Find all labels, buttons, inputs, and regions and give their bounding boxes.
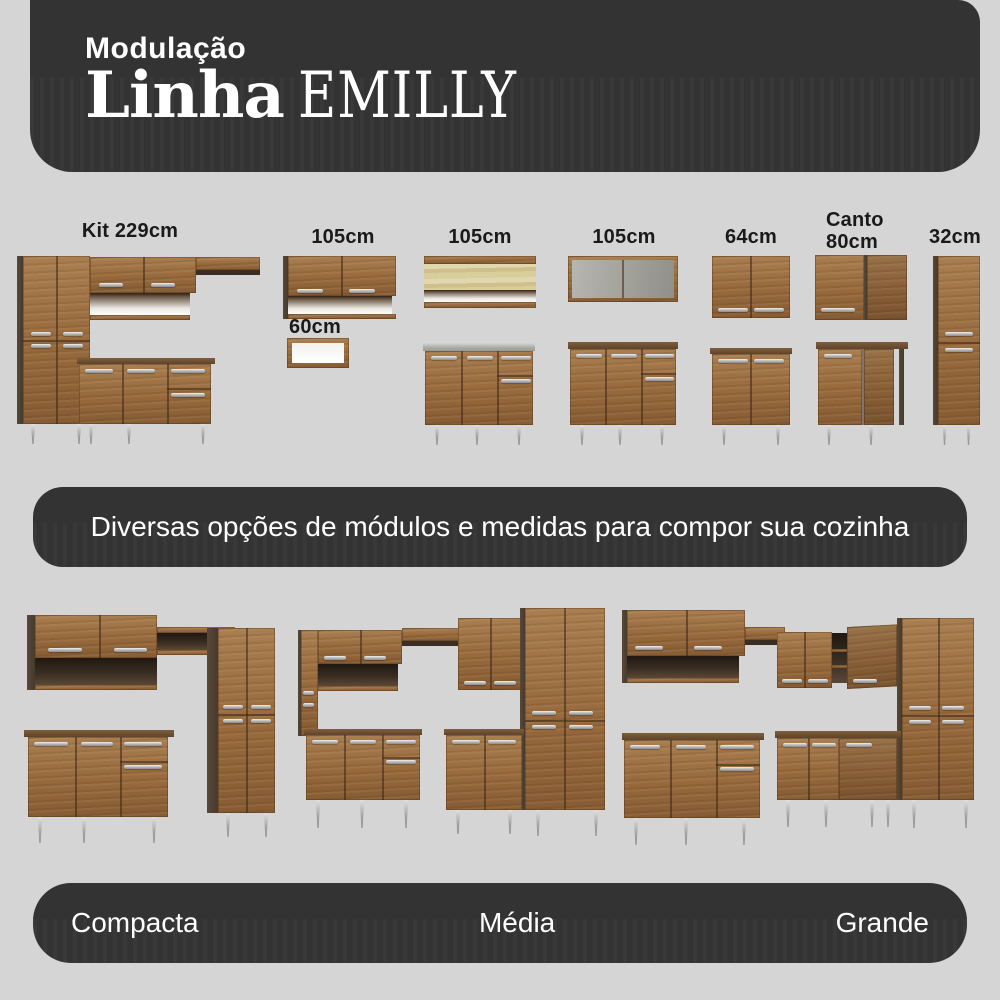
cabinet-leg bbox=[720, 425, 728, 445]
door-seam bbox=[341, 256, 343, 296]
door-seam bbox=[902, 715, 974, 717]
corner-cubbies bbox=[832, 633, 847, 683]
side-panel bbox=[27, 615, 35, 690]
base-cabinet bbox=[570, 349, 676, 425]
cabinet-handle bbox=[114, 648, 147, 652]
page-title: LinhaEMILLY bbox=[85, 58, 565, 133]
cabinet-handle bbox=[576, 354, 602, 358]
drawer-seam bbox=[497, 375, 533, 377]
cabinet-handle bbox=[63, 332, 83, 336]
module-label-105-b: 105cm bbox=[423, 226, 537, 248]
pine-sliding-doors bbox=[424, 264, 536, 290]
cabinet-handle bbox=[494, 681, 516, 685]
shelf-board bbox=[424, 302, 536, 308]
cabinet-handle bbox=[630, 745, 660, 749]
cabinet-handle bbox=[821, 308, 855, 312]
kitchen-grande-graphic bbox=[622, 603, 995, 855]
door-seam bbox=[716, 740, 718, 818]
cabinet-leg bbox=[658, 425, 666, 445]
open-shelf bbox=[288, 296, 392, 314]
countertop bbox=[24, 730, 174, 737]
kitchen-media-graphic bbox=[298, 603, 620, 853]
sink-top bbox=[423, 343, 535, 351]
shelf-board bbox=[35, 685, 157, 690]
module-label-32: 32cm bbox=[910, 226, 1000, 248]
door-seam bbox=[218, 714, 275, 716]
cabinet-leg bbox=[941, 425, 948, 445]
cabinet-handle bbox=[223, 705, 243, 709]
module-105-glass-graphic bbox=[568, 252, 680, 446]
cabinet-leg bbox=[592, 810, 600, 836]
cabinet-leg bbox=[75, 424, 83, 444]
cabinet-handle bbox=[676, 745, 706, 749]
module-label-105-a: 105cm bbox=[287, 226, 399, 248]
door-seam bbox=[143, 257, 145, 293]
cabinet-frame bbox=[424, 256, 536, 264]
open-shelf bbox=[318, 664, 398, 686]
drawer-seam bbox=[382, 757, 420, 759]
cabinet-handle bbox=[808, 679, 828, 683]
shelf-underside bbox=[402, 641, 460, 646]
kitchen-compacta-graphic bbox=[20, 608, 288, 850]
kitchens-section bbox=[0, 595, 1000, 883]
cabinet-handle bbox=[251, 719, 271, 723]
cabinet-handle bbox=[251, 705, 271, 709]
subtitle-text: Diversas opções de módulos e medidas par… bbox=[91, 511, 910, 543]
shelf-board bbox=[318, 686, 398, 691]
cabinet-handle bbox=[124, 742, 162, 746]
cabinet-leg bbox=[962, 800, 970, 828]
cabinet-leg bbox=[884, 800, 892, 827]
cabinet-handle bbox=[853, 679, 877, 683]
open-shelf bbox=[627, 656, 739, 678]
cabinet-handle bbox=[824, 354, 852, 358]
module-label-canto-line2: 80cm bbox=[826, 231, 884, 253]
cabinet-handle bbox=[31, 344, 51, 348]
shelf-box-interior bbox=[292, 343, 344, 363]
cabinet-handle bbox=[386, 760, 416, 764]
cabinet-handle bbox=[171, 393, 205, 397]
base-cabinet bbox=[28, 737, 168, 817]
header-banner: Modulação LinhaEMILLY bbox=[30, 0, 980, 172]
cabinet-handle bbox=[452, 740, 480, 744]
cabinet-handle bbox=[569, 711, 593, 715]
door-seam bbox=[120, 737, 122, 817]
door-seam bbox=[808, 738, 810, 800]
cabinet-leg bbox=[682, 818, 690, 845]
cabinet-leg bbox=[402, 800, 410, 828]
cabinet-handle bbox=[720, 767, 754, 771]
shelf-board bbox=[627, 678, 739, 683]
cabinet-leg bbox=[534, 810, 542, 836]
module-label-canto-line1: Canto bbox=[826, 209, 884, 231]
cabinet-handle bbox=[223, 719, 243, 723]
door-seam bbox=[75, 737, 77, 817]
cabinet-handle bbox=[645, 354, 674, 358]
cabinet-handle bbox=[635, 646, 663, 650]
cabinet-handle bbox=[303, 691, 314, 695]
cabinet-handle bbox=[532, 725, 556, 729]
support-panel bbox=[899, 349, 904, 425]
kitchen-size-label-grande: Grande bbox=[836, 907, 929, 939]
door-seam bbox=[938, 618, 940, 800]
module-label-64: 64cm bbox=[710, 226, 792, 248]
cabinet-handle bbox=[81, 742, 113, 746]
door-seam bbox=[167, 364, 169, 424]
cabinet-handle bbox=[31, 332, 51, 336]
open-shelf bbox=[424, 290, 536, 302]
cabinet-handle bbox=[569, 725, 593, 729]
cabinet-handle bbox=[386, 740, 416, 744]
open-shelf bbox=[90, 293, 190, 315]
door-seam bbox=[670, 740, 672, 818]
side-panel bbox=[207, 628, 218, 813]
cabinet-handle bbox=[324, 656, 346, 660]
cabinet-handle bbox=[488, 740, 516, 744]
door-seam bbox=[360, 630, 362, 664]
cabinet-handle bbox=[909, 706, 931, 710]
cabinet-handle bbox=[909, 720, 931, 724]
cabinet-leg bbox=[784, 800, 792, 827]
cabinet-handle bbox=[303, 703, 314, 707]
cabinet-handle bbox=[48, 648, 82, 652]
cabinet-handle bbox=[501, 356, 531, 360]
cabinet-leg bbox=[473, 425, 481, 445]
corner-base-door bbox=[818, 349, 862, 425]
narrow-column bbox=[301, 630, 318, 736]
cabinet-leg bbox=[740, 818, 748, 845]
corner-countertop bbox=[816, 342, 908, 349]
door-seam bbox=[23, 340, 90, 342]
corner-base-panel bbox=[839, 738, 897, 800]
door-seam bbox=[605, 349, 607, 425]
cabinet-handle bbox=[945, 348, 973, 352]
cabinet-handle bbox=[532, 711, 556, 715]
drawer-seam bbox=[167, 388, 211, 390]
module-32-graphic bbox=[933, 252, 980, 448]
cabinet-leg bbox=[822, 800, 830, 827]
door-seam bbox=[497, 351, 499, 425]
module-canto-80-graphic bbox=[813, 252, 910, 448]
cabinet-handle bbox=[431, 356, 457, 360]
cabinet-handle bbox=[297, 289, 323, 293]
cabinet-handle bbox=[85, 369, 113, 373]
corner-countertop bbox=[775, 731, 901, 738]
cubby-shelf bbox=[832, 649, 847, 652]
cabinet-handle bbox=[349, 289, 375, 293]
title-line-accent: EMILLY bbox=[298, 59, 517, 133]
cabinet-leg bbox=[867, 425, 875, 445]
cabinet-handle bbox=[34, 742, 68, 746]
tall-cabinet bbox=[938, 256, 980, 425]
cabinet-leg bbox=[825, 425, 833, 445]
drawer-seam bbox=[716, 764, 760, 766]
cabinet-handle bbox=[151, 283, 175, 287]
base-cabinet bbox=[624, 740, 760, 818]
cabinet-leg bbox=[125, 424, 133, 444]
drawer-seam bbox=[641, 373, 676, 375]
cabinet-leg bbox=[80, 817, 88, 843]
poster: Modulação LinhaEMILLY Kit 229cm 105cm 60… bbox=[0, 0, 1000, 1000]
cabinet-leg bbox=[36, 817, 44, 843]
bridge-shelf bbox=[196, 257, 260, 270]
cabinet-handle bbox=[942, 720, 964, 724]
corner-return-panel bbox=[867, 255, 907, 320]
cabinet-handle bbox=[364, 656, 386, 660]
cabinet-handle bbox=[501, 379, 531, 383]
door-seam bbox=[750, 256, 752, 318]
cabinet-leg bbox=[910, 800, 918, 828]
base-cabinet bbox=[425, 351, 533, 425]
module-label-kit: Kit 229cm bbox=[55, 220, 205, 242]
door-seam bbox=[750, 354, 752, 425]
cabinet-handle bbox=[718, 308, 748, 312]
shelf-board bbox=[90, 315, 190, 320]
cabinet-leg bbox=[632, 818, 640, 845]
cabinet-handle bbox=[171, 369, 205, 373]
door-seam bbox=[564, 608, 566, 810]
door-seam bbox=[490, 618, 492, 690]
cubby-shelf bbox=[832, 665, 847, 668]
module-label-105-c: 105cm bbox=[568, 226, 680, 248]
modules-section: Kit 229cm 105cm 60cm 105cm 105cm 64cm Ca… bbox=[0, 190, 1000, 485]
door-seam bbox=[461, 351, 463, 425]
module-105-shelf-graphic bbox=[283, 252, 399, 370]
cabinet-leg bbox=[29, 424, 37, 444]
countertop bbox=[568, 342, 678, 349]
cabinet-handle bbox=[720, 745, 754, 749]
drawer-seam bbox=[120, 761, 168, 763]
cabinet-handle bbox=[63, 344, 83, 348]
cabinet-handle bbox=[694, 646, 722, 650]
cabinet-leg bbox=[358, 800, 366, 828]
cabinet-leg bbox=[454, 810, 462, 834]
cabinet-handle bbox=[783, 743, 807, 747]
cabinet-leg bbox=[578, 425, 586, 445]
cabinet-leg bbox=[314, 800, 322, 828]
countertop bbox=[622, 733, 764, 740]
cabinet-handle bbox=[718, 359, 748, 363]
cabinet-leg bbox=[965, 425, 972, 445]
door-seam bbox=[344, 735, 346, 800]
door-seam bbox=[804, 632, 806, 688]
cabinet-leg bbox=[506, 810, 514, 834]
cabinet-leg bbox=[774, 425, 782, 445]
glass-seam bbox=[622, 260, 624, 298]
cabinet-leg bbox=[262, 813, 270, 837]
footer-banner: Compacta Média Grande bbox=[33, 883, 967, 963]
door-seam bbox=[686, 610, 688, 656]
cabinet-handle bbox=[350, 740, 376, 744]
cabinet-leg bbox=[433, 425, 441, 445]
module-105-pine-graphic bbox=[423, 252, 537, 446]
module-64-graphic bbox=[710, 252, 792, 446]
cabinet-handle bbox=[945, 332, 973, 336]
cabinet-handle bbox=[99, 283, 123, 287]
bridge-shelf bbox=[402, 628, 460, 641]
door-seam bbox=[99, 615, 101, 658]
shelf-board bbox=[288, 314, 396, 319]
kitchen-size-label-media: Média bbox=[479, 907, 555, 939]
door-seam bbox=[641, 349, 643, 425]
cabinet-handle bbox=[846, 743, 872, 747]
open-shelf bbox=[35, 658, 157, 685]
cabinet-handle bbox=[645, 377, 674, 381]
cabinet-leg bbox=[616, 425, 624, 445]
cabinet-handle bbox=[754, 359, 784, 363]
kitchen-size-label-compacta: Compacta bbox=[71, 907, 199, 939]
door-seam bbox=[484, 735, 486, 810]
door-seam bbox=[938, 342, 980, 344]
module-label-canto: Canto 80cm bbox=[826, 209, 884, 253]
door-seam bbox=[122, 364, 124, 424]
cabinet-handle bbox=[611, 354, 637, 358]
title-line-name: Linha bbox=[85, 58, 284, 133]
module-kit-229-graphic bbox=[17, 252, 263, 448]
base-cabinet bbox=[306, 735, 420, 800]
subtitle-banner: Diversas opções de módulos e medidas par… bbox=[33, 487, 967, 567]
cabinet-leg bbox=[868, 800, 876, 827]
cabinet-handle bbox=[782, 679, 802, 683]
cabinet-handle bbox=[942, 706, 964, 710]
cabinet-handle bbox=[754, 308, 784, 312]
cabinet-handle bbox=[124, 765, 162, 769]
cabinet-leg bbox=[150, 817, 158, 843]
cabinet-handle bbox=[464, 681, 486, 685]
door-seam bbox=[246, 628, 248, 813]
cabinet-handle bbox=[467, 356, 493, 360]
cabinet-leg bbox=[87, 424, 95, 444]
shelf-underside bbox=[196, 270, 260, 275]
cabinet-handle bbox=[312, 740, 338, 744]
door-seam bbox=[382, 735, 384, 800]
cabinet-leg bbox=[224, 813, 232, 837]
door-seam bbox=[525, 720, 605, 722]
cabinet-handle bbox=[812, 743, 836, 747]
cabinet-leg bbox=[515, 425, 523, 445]
corner-base-panel bbox=[864, 349, 894, 425]
cabinet-leg bbox=[199, 424, 207, 444]
cabinet-handle bbox=[127, 369, 155, 373]
